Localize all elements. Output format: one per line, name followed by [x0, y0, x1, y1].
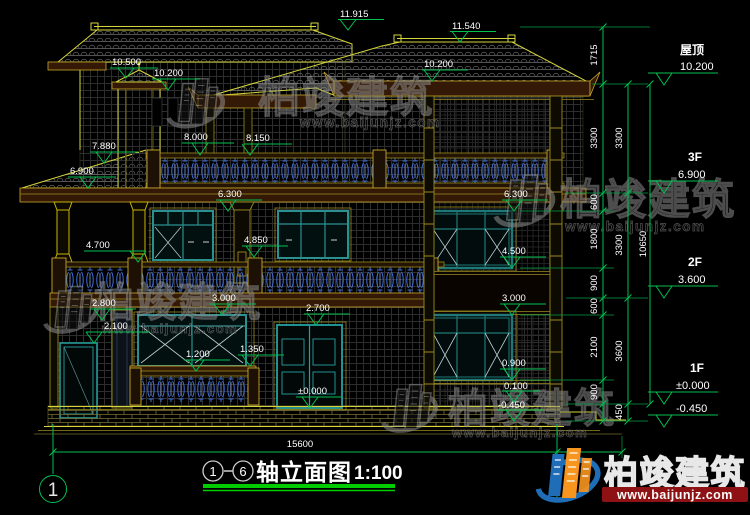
level-label-roof: 屋顶	[680, 43, 704, 57]
watermark-site: www.baijunjz.com	[564, 219, 706, 234]
dim: 900	[589, 275, 600, 291]
spot-label: 4.500	[502, 246, 526, 257]
dim: 1715	[589, 44, 600, 65]
window-2f-left	[150, 208, 216, 262]
title-scale: 1:100	[354, 463, 403, 484]
level-value-2f: 3.600	[678, 274, 706, 286]
dim: 3600	[614, 340, 625, 361]
level-value-3f: 6.900	[678, 169, 706, 181]
spot-label: 0.900	[502, 358, 526, 369]
dim-total: 10650	[638, 231, 649, 257]
spot-label: 10.200	[154, 68, 183, 79]
level-value-base: -0.450	[676, 403, 707, 415]
cornice-3f	[20, 188, 586, 202]
window-2f-middle	[275, 208, 351, 261]
spot-label: -0.450	[498, 400, 525, 411]
dim: 3300	[614, 234, 625, 255]
axis-bubble-1-label: 1	[48, 480, 59, 501]
spot-label: 7.880	[92, 141, 116, 152]
level-label-1f: 1F	[690, 361, 704, 375]
wall-vent	[152, 98, 162, 126]
watermark-top: 柏竣建筑 www.baijunjz.com	[163, 74, 441, 133]
watermark-left: 柏竣建筑 www.baijunjz.com	[40, 281, 262, 338]
level-label-3f: 3F	[688, 150, 702, 164]
spot-label: 3.000	[212, 293, 236, 304]
dim: 900	[589, 384, 600, 400]
title-axis-start: 1	[209, 464, 216, 479]
window-1f-right-wing	[426, 311, 516, 384]
level-value-1f: ±0.000	[676, 380, 710, 392]
dim: 600	[589, 194, 600, 210]
spot-label: 8.150	[246, 133, 270, 144]
title-text: 轴立面图	[256, 459, 352, 485]
spot-label: 10.200	[424, 59, 453, 70]
spot-label: 11.540	[452, 21, 480, 32]
watermark-brand: 柏竣建筑	[560, 176, 736, 223]
spot-label: 6.300	[504, 189, 528, 200]
title-axis-end: 6	[239, 464, 246, 479]
dim: 3300	[589, 127, 600, 148]
watermark-site: www.baijunjz.com	[299, 115, 441, 130]
spot-label: 2.100	[104, 321, 128, 332]
spot-label: 3.000	[502, 293, 526, 304]
spot-label: 6.300	[218, 189, 242, 200]
spot-label: 6.900	[70, 166, 94, 177]
window-2f-right-wing	[426, 207, 516, 271]
spot-label: 1.350	[240, 344, 264, 355]
watermark-brand: 柏竣建筑	[258, 74, 434, 121]
level-value-roof: 10.200	[680, 61, 714, 73]
spot-label: ±0.000	[298, 386, 327, 397]
title-underline	[203, 484, 395, 488]
cad-elevation-screenshot: 柏竣建筑 www.baijunjz.com 柏竣建筑 www.baijunjz.…	[0, 0, 750, 515]
tower-roof	[58, 30, 352, 62]
level-label-2f: 2F	[688, 255, 702, 269]
dim: 2100	[589, 336, 600, 357]
spot-label: 10.500	[112, 57, 141, 68]
dim: 600	[589, 298, 600, 314]
spot-label: 8.000	[184, 132, 208, 143]
watermark-site: www.baijunjz.com	[451, 425, 588, 440]
spot-label: 2.800	[92, 298, 116, 309]
spot-label: 2.700	[306, 303, 330, 314]
spot-label: 11.915	[340, 9, 368, 20]
spot-label: 1.200	[186, 349, 210, 360]
overall-width-dim: 15600	[287, 439, 313, 450]
dim: 450	[614, 404, 625, 420]
watermark-brand: 柏竣建筑	[94, 281, 262, 325]
wing-spandrel	[434, 271, 550, 315]
dim: 1800	[589, 228, 600, 249]
spot-label: 4.700	[86, 240, 110, 251]
elevation-drawing-canvas: 柏竣建筑 www.baijunjz.com 柏竣建筑 www.baijunjz.…	[0, 0, 750, 515]
watermark-right: 柏竣建筑 www.baijunjz.com	[490, 175, 736, 234]
dim: 3300	[614, 127, 625, 148]
site-logo-site: www.baijunjz.com	[616, 488, 733, 502]
spot-label: 4.850	[244, 235, 268, 246]
spot-label: 0.100	[504, 381, 528, 392]
